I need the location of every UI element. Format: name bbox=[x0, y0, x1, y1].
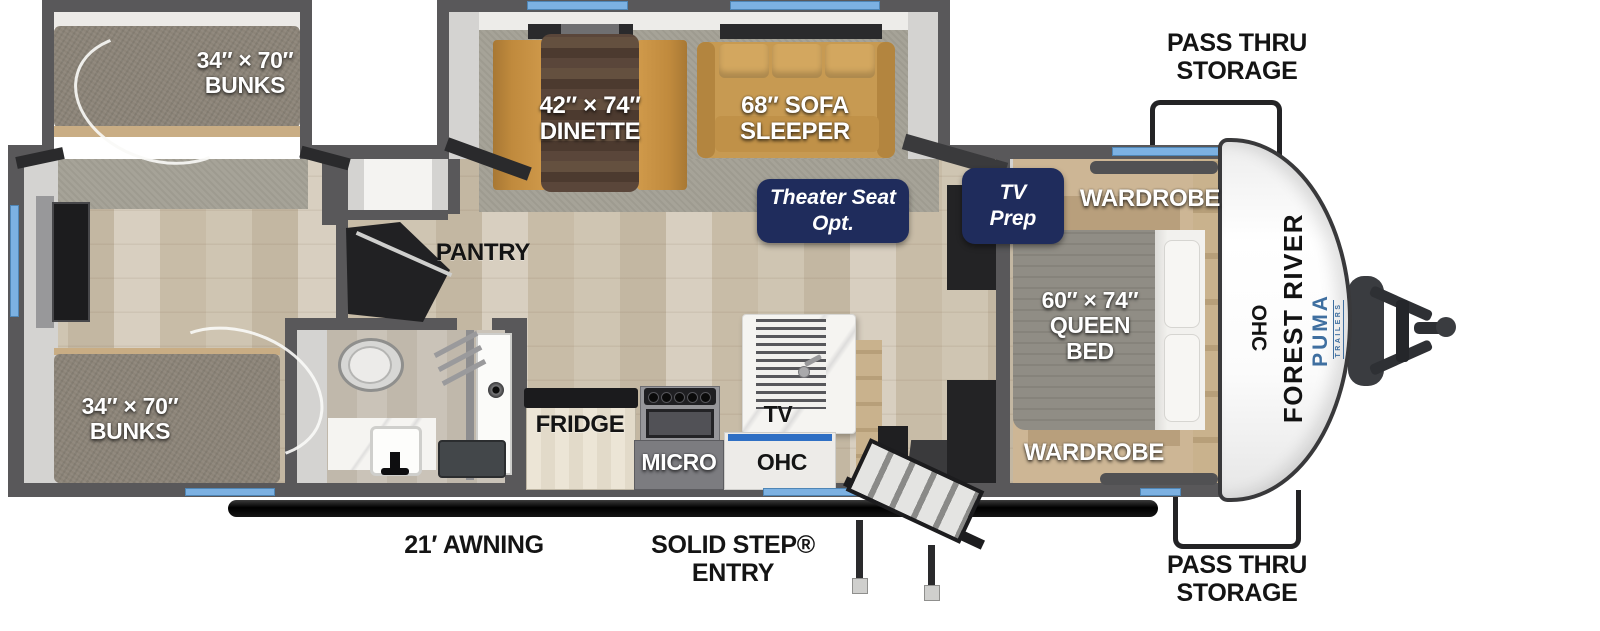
pass-thru-top-line1: PASS THRU bbox=[1167, 30, 1307, 58]
pantry-label: PANTRY bbox=[436, 240, 530, 266]
floorplan-scene: OHC FOREST RIVER PUMA TRAILERS Theater S… bbox=[0, 0, 1600, 631]
entry-step-leg-1 bbox=[856, 520, 863, 580]
tv-prep-line2: Prep bbox=[962, 206, 1064, 232]
awning-label: 21′ AWNING bbox=[404, 532, 544, 560]
entry-step-leg-2 bbox=[928, 545, 935, 587]
dinette-slide-sideL bbox=[449, 12, 479, 159]
window-dinette-slide-1 bbox=[527, 1, 628, 10]
window-bedroom-top bbox=[1112, 147, 1222, 156]
sofa-back-cushion-2 bbox=[772, 44, 822, 78]
fridge-top bbox=[524, 388, 638, 408]
rear-tv bbox=[52, 202, 90, 322]
wardrobe-bottom-label: WARDROBE bbox=[1024, 440, 1164, 466]
entry-step-foot-1 bbox=[852, 578, 868, 594]
bottom-wall-right bbox=[958, 483, 1230, 497]
island-louver-panel bbox=[756, 319, 826, 409]
tv-label: TV bbox=[764, 402, 793, 427]
bathroom-faucet-handle bbox=[381, 468, 409, 475]
stove-burner-3 bbox=[674, 392, 685, 403]
stove-burner-1 bbox=[648, 392, 659, 403]
pass-thru-bottom-line2: STORAGE bbox=[1167, 580, 1307, 608]
sofa-line2: SLEEPER bbox=[740, 119, 850, 145]
toilet-lid bbox=[348, 346, 392, 384]
divider-black-panel-bottom bbox=[947, 380, 996, 483]
bunk-top-size: 34″ × 70″ bbox=[197, 48, 294, 73]
theater-seat-option-badge: Theater Seat Opt. bbox=[757, 179, 909, 243]
theater-badge-line1: Theater Seat bbox=[757, 185, 909, 211]
entry-line1: SOLID STEP® bbox=[651, 532, 815, 560]
window-bottom-1 bbox=[185, 488, 275, 496]
window-bottom-2 bbox=[763, 488, 858, 496]
puma-text: PUMA bbox=[1309, 293, 1333, 367]
entry-step-foot-2 bbox=[924, 585, 940, 601]
model-vertical-label: PUMA TRAILERS bbox=[1266, 270, 1386, 390]
pass-thru-bottom-line1: PASS THRU bbox=[1167, 552, 1307, 580]
dinette-slide-wall-left bbox=[437, 0, 449, 159]
hitch-coupler-ball bbox=[1436, 317, 1456, 337]
island-faucet bbox=[798, 366, 810, 378]
fridge-label: FRIDGE bbox=[536, 412, 625, 438]
stove-oven-door bbox=[646, 409, 714, 438]
bunk-bottom-name: BUNKS bbox=[82, 419, 179, 444]
bedroom-bottom-bar bbox=[1100, 473, 1218, 485]
bedroom-wardrobe-rod bbox=[1090, 161, 1218, 174]
window-bottom-3 bbox=[1140, 488, 1181, 496]
bunk-bottom-size: 34″ × 70″ bbox=[82, 394, 179, 419]
sofa-back-cushion-1 bbox=[719, 44, 769, 78]
bunk-slide-wall-top bbox=[42, 0, 312, 12]
sofa-window-valance bbox=[720, 24, 882, 39]
dinette-label: 42″ × 74″ DINETTE bbox=[539, 93, 640, 146]
stove-burner-5 bbox=[700, 392, 711, 403]
entry-line2: ENTRY bbox=[651, 560, 815, 588]
dinette-size: 42″ × 74″ bbox=[539, 93, 640, 119]
shower-head bbox=[488, 382, 504, 398]
bunk-slide-wall-right bbox=[300, 0, 312, 159]
queen-size: 60″ × 74″ bbox=[1042, 288, 1139, 313]
tv-prep-badge: TV Prep bbox=[962, 168, 1064, 244]
sofa-arm-left bbox=[697, 42, 715, 158]
solid-step-entry-label: SOLID STEP® ENTRY bbox=[651, 532, 815, 587]
pass-thru-bottom-label: PASS THRU STORAGE bbox=[1167, 552, 1307, 607]
bunk-bottom-label: 34″ × 70″ BUNKS bbox=[82, 394, 179, 445]
queen-line3: BED bbox=[1042, 339, 1139, 364]
bunk-top-label: 34″ × 70″ BUNKS bbox=[197, 48, 294, 99]
puma-sub-text: TRAILERS bbox=[1333, 301, 1344, 360]
closet-shelf bbox=[340, 210, 448, 220]
sofa-arm-right bbox=[877, 42, 895, 158]
theater-badge-line2: Opt. bbox=[757, 211, 909, 237]
pass-thru-top-line2: STORAGE bbox=[1167, 58, 1307, 86]
bathroom-wall-top-left bbox=[285, 318, 457, 330]
bunk-slide-wall-left bbox=[42, 0, 54, 159]
queen-line2: QUEEN bbox=[1042, 313, 1139, 338]
sofa-back-cushion-3 bbox=[825, 44, 875, 78]
window-dinette-slide-2 bbox=[730, 1, 880, 10]
closet-side-right bbox=[432, 159, 448, 210]
window-rear-wall bbox=[10, 205, 19, 317]
sofa-label: 68″ SOFA SLEEPER bbox=[740, 93, 850, 146]
rear-wall bbox=[8, 145, 24, 497]
shower-pan bbox=[438, 440, 506, 478]
pass-thru-top-label: PASS THRU STORAGE bbox=[1167, 30, 1307, 85]
queen-bed-label: 60″ × 74″ QUEEN BED bbox=[1042, 288, 1139, 364]
dinette-name: DINETTE bbox=[539, 119, 640, 145]
bunk-top-name: BUNKS bbox=[197, 73, 294, 98]
closet-right-wall bbox=[448, 159, 460, 214]
ohc-cabinet-blue-trim bbox=[728, 434, 832, 441]
dinette-bench-right bbox=[637, 40, 687, 190]
stove-burner-2 bbox=[661, 392, 672, 403]
dinette-slide-wall-right bbox=[938, 0, 950, 159]
awning-tube bbox=[228, 500, 1158, 517]
closet-side-left bbox=[348, 159, 364, 210]
bunk-slide-floor bbox=[52, 159, 308, 209]
sofa-line1: 68″ SOFA bbox=[740, 93, 850, 119]
ohc-kitchen-label: OHC bbox=[757, 450, 807, 475]
micro-label: MICRO bbox=[641, 450, 716, 475]
tv-prep-line1: TV bbox=[962, 180, 1064, 206]
stove-burner-4 bbox=[687, 392, 698, 403]
